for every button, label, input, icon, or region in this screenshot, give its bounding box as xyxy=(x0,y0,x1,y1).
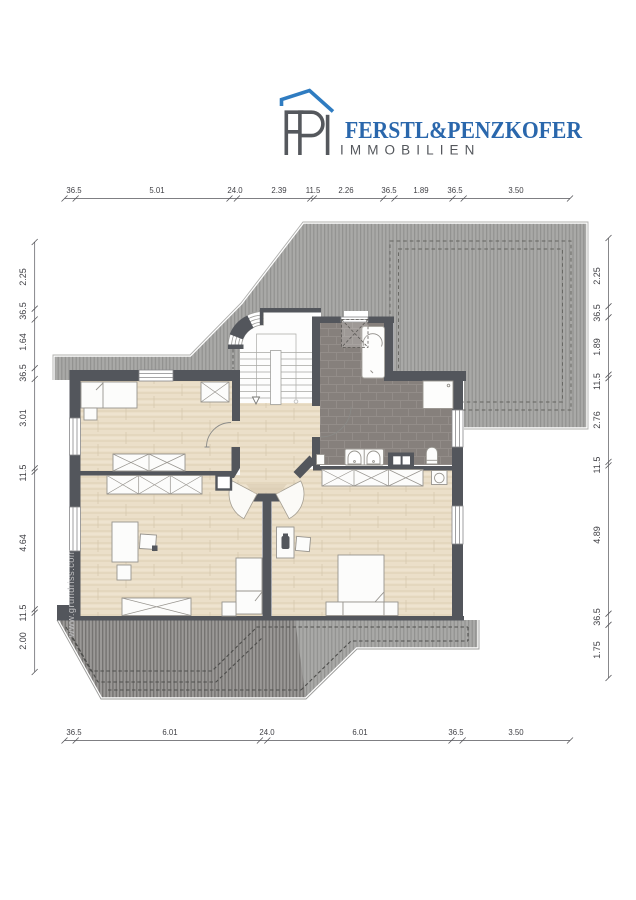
svg-text:3.50: 3.50 xyxy=(508,728,524,737)
svg-text:36.5: 36.5 xyxy=(447,186,463,195)
svg-text:6.01: 6.01 xyxy=(162,728,177,737)
svg-text:3.01: 3.01 xyxy=(18,409,28,427)
svg-text:24.0: 24.0 xyxy=(227,186,243,195)
svg-text:11.5: 11.5 xyxy=(592,457,602,474)
svg-text:1.75: 1.75 xyxy=(592,641,602,659)
svg-text:11.5: 11.5 xyxy=(18,605,28,622)
svg-text:5.01: 5.01 xyxy=(149,186,164,195)
svg-text:11.5: 11.5 xyxy=(18,465,28,482)
svg-text:1.89: 1.89 xyxy=(413,186,428,195)
svg-text:36.5: 36.5 xyxy=(592,304,602,322)
svg-text:36.5: 36.5 xyxy=(18,364,28,382)
svg-text:2.25: 2.25 xyxy=(18,268,28,286)
svg-text:IMMOBILIEN: IMMOBILIEN xyxy=(340,143,481,158)
svg-text:36.5: 36.5 xyxy=(592,608,602,626)
svg-text:36.5: 36.5 xyxy=(381,186,397,195)
svg-text:3.50: 3.50 xyxy=(508,186,524,195)
svg-text:4.89: 4.89 xyxy=(592,526,602,544)
svg-text:2.76: 2.76 xyxy=(592,411,602,429)
svg-text:36.5: 36.5 xyxy=(66,186,82,195)
svg-text:1.89: 1.89 xyxy=(592,338,602,356)
svg-text:24.0: 24.0 xyxy=(259,728,275,737)
svg-text:6.01: 6.01 xyxy=(352,728,367,737)
svg-text:FERSTL&PENZKOFER: FERSTL&PENZKOFER xyxy=(345,117,582,144)
svg-text:www.grundriss.com: www.grundriss.com xyxy=(66,549,76,638)
svg-text:11.5: 11.5 xyxy=(306,186,321,195)
svg-text:36.5: 36.5 xyxy=(66,728,82,737)
svg-text:36.5: 36.5 xyxy=(18,302,28,320)
svg-text:4.64: 4.64 xyxy=(18,534,28,552)
svg-text:2.00: 2.00 xyxy=(18,632,28,650)
svg-text:2.26: 2.26 xyxy=(338,186,353,195)
svg-text:11.5: 11.5 xyxy=(592,373,602,390)
svg-text:2.25: 2.25 xyxy=(592,267,602,285)
svg-text:2.39: 2.39 xyxy=(271,186,286,195)
svg-text:1.64: 1.64 xyxy=(18,333,28,351)
svg-text:36.5: 36.5 xyxy=(448,728,464,737)
